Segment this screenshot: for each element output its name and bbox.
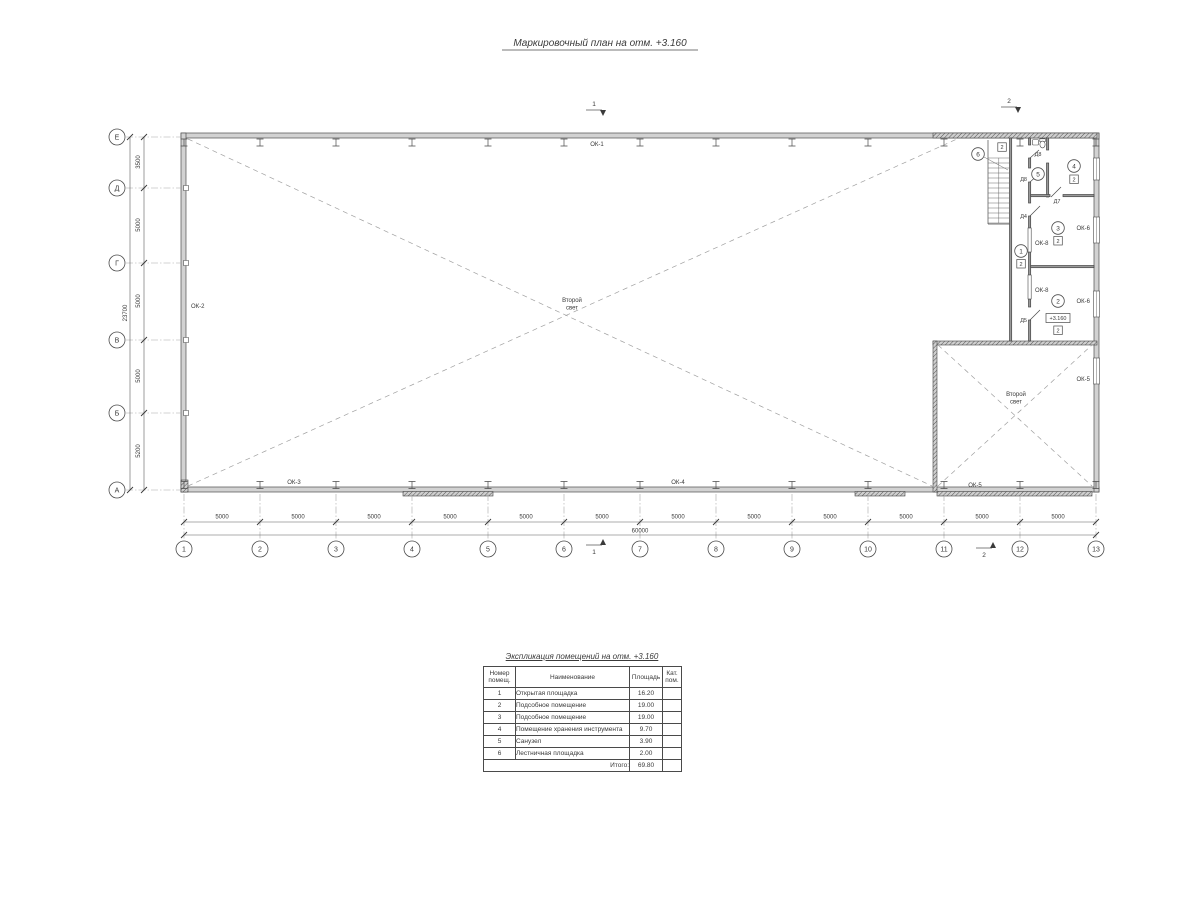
room-area: 19.00 <box>630 712 663 724</box>
hatched-wall-segment <box>933 133 1097 138</box>
row-grid: Е Д Г В Б А 3500 5000 5000 5000 5200 237… <box>109 129 181 498</box>
explication-table: Номер помещ. Наименование Площадь Кат. п… <box>483 666 682 772</box>
grid-col-bubble-13: 13 <box>1092 547 1100 554</box>
section-mark-1-bottom: 1 <box>592 549 596 556</box>
table-row: 1 Открытая площадка 16.20 <box>484 688 682 700</box>
second-light-annex-line1: Второй <box>1006 391 1026 398</box>
room-category <box>663 712 682 724</box>
staircase <box>988 140 1010 224</box>
dim-col: 5000 <box>519 515 533 521</box>
interior-partitions <box>1010 138 1095 341</box>
grid-col-bubble-5: 5 <box>486 547 490 554</box>
floor-type-mark: 2 <box>1000 145 1003 151</box>
floor-type-mark: 2 <box>1072 177 1075 183</box>
room-area: 2.00 <box>630 748 663 760</box>
floor-type-mark: 2 <box>1056 239 1059 245</box>
table-header-row: Номер помещ. Наименование Площадь Кат. п… <box>484 667 682 688</box>
second-light-diagonals <box>188 139 1092 486</box>
grid-col-bubble-8: 8 <box>714 547 718 554</box>
room-name: Подсобное помещение <box>516 700 630 712</box>
grid-col-bubble-12: 12 <box>1016 547 1024 554</box>
sanitary-fixtures <box>1033 139 1046 148</box>
table-row: 5 Санузел 3.90 <box>484 736 682 748</box>
window-label-ok6-room2: ОК-6 <box>1077 299 1091 305</box>
gate-apron <box>403 492 493 497</box>
dim-col: 5000 <box>367 515 381 521</box>
dim-col: 5000 <box>595 515 609 521</box>
grid-row-bubble-b: Б <box>115 411 120 418</box>
door-label-d5: Д5 <box>1020 318 1027 324</box>
table-row: 3 Подсобное помещение 19.00 <box>484 712 682 724</box>
room-number: 5 <box>484 736 516 748</box>
window-label-ok8-room2: ОК-8 <box>1035 288 1049 294</box>
grid-row-bubble-e: Е <box>115 135 120 142</box>
total-value: 69.80 <box>630 760 663 772</box>
dim-col: 5000 <box>975 515 989 521</box>
room-name: Санузел <box>516 736 630 748</box>
window-label-ok2: ОК-2 <box>191 304 205 310</box>
grid-col-bubble-3: 3 <box>334 547 338 554</box>
header-category: Кат. пом. <box>663 667 682 688</box>
table-row: 4 Помещение хранения инструмента 9.70 <box>484 724 682 736</box>
table-total-row: Итого: 69.80 <box>484 760 682 772</box>
window-label-ok3: ОК-3 <box>287 480 301 486</box>
room-bubble-5: 5 <box>1036 171 1040 178</box>
door-label-d8-top: Д8 <box>1035 152 1042 158</box>
dim-col: 5000 <box>443 515 457 521</box>
room-bubble-3: 3 <box>1056 225 1060 232</box>
opening-labels: ОК-1 ОК-2 ОК-3 ОК-4 ОК-5 ОК-5 ОК-6 ОК-6 … <box>191 142 1091 489</box>
room-area: 3.90 <box>630 736 663 748</box>
grid-row-bubble-d: Д <box>115 186 120 193</box>
dim-row-4: 5200 <box>136 444 142 458</box>
exterior-walls <box>181 133 1099 496</box>
section-mark-1-top: 1 <box>592 101 596 108</box>
annex-sill <box>937 492 1092 497</box>
dim-row-0: 3500 <box>136 155 142 169</box>
room-bubble-2: 2 <box>1056 298 1060 305</box>
window-label-ok5-right: ОК-5 <box>1077 377 1091 383</box>
dim-col: 5000 <box>823 515 837 521</box>
header-name: Наименование <box>516 667 630 688</box>
room-bubble-4: 4 <box>1072 163 1076 170</box>
door-label-d8-side: Д8 <box>1020 177 1027 183</box>
room-name: Открытая площадка <box>516 688 630 700</box>
room-area: 16.20 <box>630 688 663 700</box>
grid-col-bubble-11: 11 <box>940 547 947 554</box>
total-label: Итого: <box>484 760 630 772</box>
plan-title: Маркировочный план на отм. +3.160 <box>513 38 687 49</box>
room-area: 9.70 <box>630 724 663 736</box>
table-row: 2 Подсобное помещение 19.00 <box>484 700 682 712</box>
dim-col-total: 60000 <box>632 529 649 535</box>
grid-col-bubble-9: 9 <box>790 547 794 554</box>
room-bubble-6: 6 <box>976 151 980 158</box>
room-number: 2 <box>484 700 516 712</box>
table-row: 6 Лестничная площадка 2.00 <box>484 748 682 760</box>
elevation-mark: +3.160 <box>1050 316 1067 322</box>
annex-walls <box>933 341 1097 492</box>
column-grid: 5000 5000 5000 5000 5000 5000 5000 5000 … <box>176 494 1104 557</box>
grid-col-bubble-6: 6 <box>562 547 566 554</box>
second-light-main-line1: Второй <box>562 297 582 304</box>
explication-block: Экспликация помещений на отм. +3.160 Ном… <box>483 652 681 772</box>
drawing-title: Маркировочный план на отм. +3.160 <box>502 38 698 50</box>
window-symbols <box>1028 158 1100 384</box>
dim-col: 5000 <box>291 515 305 521</box>
dim-col: 5000 <box>899 515 913 521</box>
room-name: Помещение хранения инструмента <box>516 724 630 736</box>
dim-col: 5000 <box>671 515 685 521</box>
grid-col-bubble-1: 1 <box>182 547 186 554</box>
dim-col: 5000 <box>215 515 229 521</box>
dim-row-1: 5000 <box>136 218 142 232</box>
dim-row-3: 5000 <box>136 369 142 383</box>
dim-col: 5000 <box>747 515 761 521</box>
door-label-d7: Д7 <box>1054 199 1061 205</box>
grid-col-bubble-7: 7 <box>638 547 642 554</box>
grid-row-bubble-g: Г <box>115 261 119 268</box>
room-name: Лестничная площадка <box>516 748 630 760</box>
header-area: Площадь <box>630 667 663 688</box>
window-label-ok8-room3: ОК-8 <box>1035 241 1049 247</box>
room-area: 19.00 <box>630 700 663 712</box>
grid-col-bubble-2: 2 <box>258 547 262 554</box>
room-number: 3 <box>484 712 516 724</box>
explication-title: Экспликация помещений на отм. +3.160 <box>483 652 681 661</box>
floor-plan-drawing: Маркировочный план на отм. +3.160 <box>0 0 1200 620</box>
second-light-main-line2: свет <box>566 306 578 312</box>
room-name: Подсобное помещение <box>516 712 630 724</box>
grid-row-bubble-a: А <box>115 488 120 495</box>
floor-type-mark: 2 <box>1019 262 1022 268</box>
dim-col: 5000 <box>1051 515 1065 521</box>
grid-row-bubble-v: В <box>115 338 120 345</box>
room-number: 4 <box>484 724 516 736</box>
floor-type-mark: 2 <box>1056 328 1059 334</box>
total-category <box>663 760 682 772</box>
room-bubble-1: 1 <box>1019 248 1023 255</box>
second-light-labels: Второй свет Второй свет <box>562 297 1026 406</box>
room-category <box>663 736 682 748</box>
window-label-ok4: ОК-4 <box>671 480 685 486</box>
window-label-ok6-room3: ОК-6 <box>1077 226 1091 232</box>
column-symbols <box>181 139 1100 489</box>
room-category <box>663 688 682 700</box>
room-category <box>663 748 682 760</box>
room-number: 1 <box>484 688 516 700</box>
room-number: 6 <box>484 748 516 760</box>
dim-row-2: 5000 <box>136 294 142 308</box>
room-category <box>663 724 682 736</box>
section-mark-2-top: 2 <box>1007 98 1011 105</box>
window-label-ok1: ОК-1 <box>590 142 604 148</box>
grid-col-bubble-10: 10 <box>864 547 872 554</box>
grid-col-bubble-4: 4 <box>410 547 414 554</box>
room-category <box>663 700 682 712</box>
gate-apron <box>855 492 905 497</box>
door-label-d4: Д4 <box>1020 214 1027 220</box>
header-room-number: Номер помещ. <box>484 667 516 688</box>
window-label-ok5-bottom: ОК-5 <box>968 483 982 489</box>
second-light-annex-line2: свет <box>1010 400 1022 406</box>
dim-row-total: 23700 <box>123 304 129 321</box>
section-mark-2-bottom: 2 <box>982 552 986 559</box>
